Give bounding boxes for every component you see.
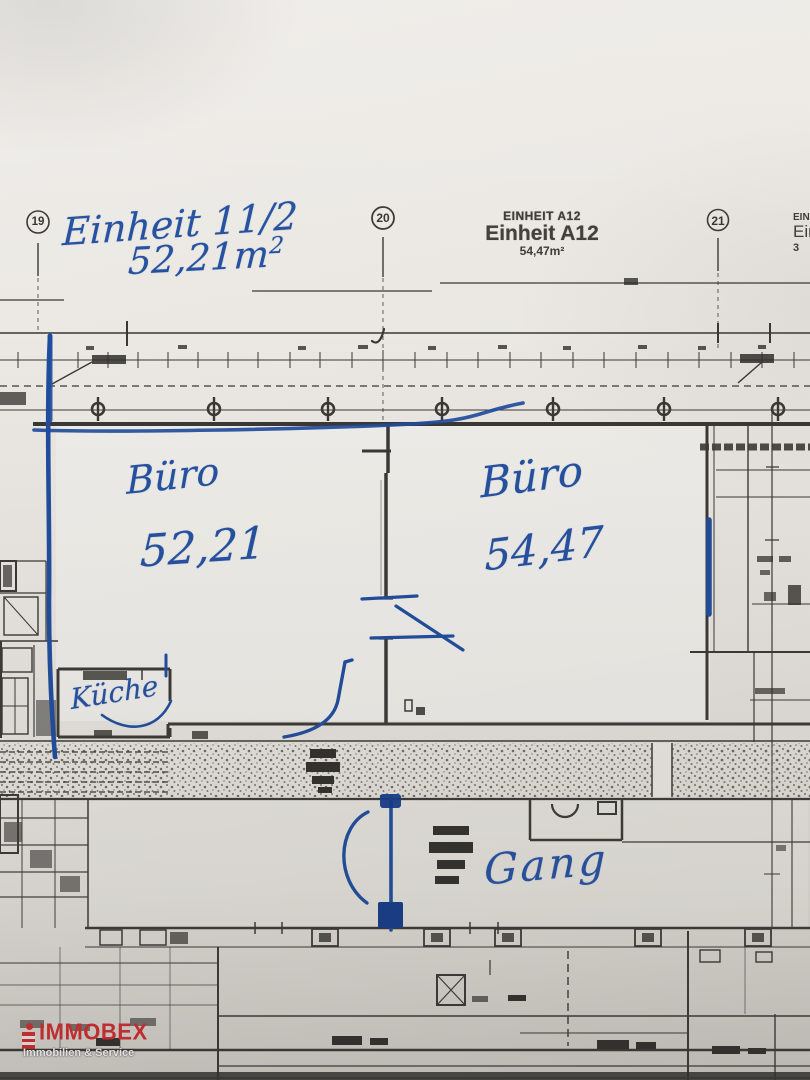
printed-unit-block: EINHEIT A12 Einheit A12 54,47m² [468,210,616,257]
corridor-band [0,731,810,799]
edge-partial-name: Ein [793,223,810,242]
edge-partial-unit-block: EINH Ein 3 [793,212,810,254]
handwritten-unit-area-value: 52,21m [127,233,270,284]
grid-marker-19: 19 [26,216,50,228]
handwritten-unit-area-sup: 2 [269,233,285,260]
immobex-logo: IMMOBEX Immobilien & Service [20,1016,220,1072]
grid-marker-21: 21 [706,214,730,228]
floorplan-photo: 19 20 21 EINHEIT A12 Einheit A12 54,47m²… [0,0,810,1080]
handwritten-room-left-area: 52,21 [139,517,266,577]
printed-unit-name: Einheit A12 [468,223,616,245]
grid-marker-20: 20 [371,211,395,225]
plan-linework-svg [0,0,810,1080]
dimension-lines [0,278,810,410]
printed-unit-area: 54,47m² [468,245,616,258]
logo-brand-text: IMMOBEX [39,1018,148,1045]
edge-partial-area: 3 [793,242,810,254]
column-markers [92,397,784,421]
logo-tagline: Immobilien & Service [23,1047,134,1059]
printed-unit-caps: EINHEIT A12 [468,210,616,223]
handwritten-unit-area: 52,21m2 [127,232,285,283]
